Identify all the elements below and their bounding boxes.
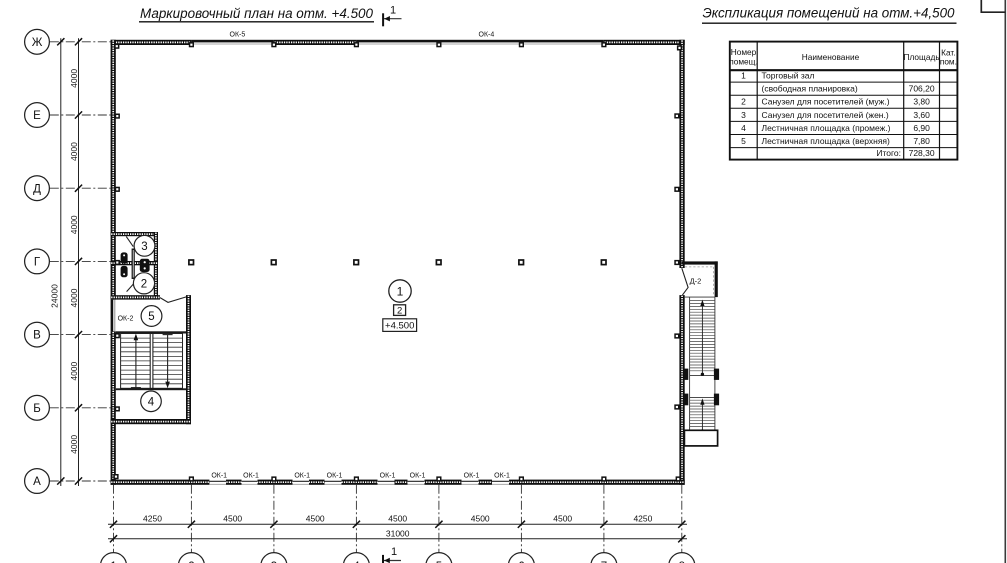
svg-text:Экспликация помещений на отм.+: Экспликация помещений на отм.+4,500 <box>703 6 955 22</box>
svg-text:ОК-1: ОК-1 <box>294 472 310 479</box>
svg-text:706,20: 706,20 <box>909 84 935 94</box>
svg-text:ОК-1: ОК-1 <box>410 472 426 479</box>
svg-text:Маркировочный план на отм. +4.: Маркировочный план на отм. +4.500 <box>140 6 373 22</box>
svg-text:Ж: Ж <box>32 37 43 49</box>
svg-text:2: 2 <box>141 278 147 290</box>
svg-text:пом.: пом. <box>940 57 957 67</box>
svg-text:4: 4 <box>741 123 746 133</box>
svg-text:Д-2: Д-2 <box>690 276 702 285</box>
svg-text:4500: 4500 <box>388 514 407 524</box>
svg-text:4000: 4000 <box>69 288 79 307</box>
svg-text:4000: 4000 <box>69 361 79 380</box>
svg-text:4250: 4250 <box>143 514 162 524</box>
svg-text:728,30: 728,30 <box>909 148 935 158</box>
svg-text:ОК-1: ОК-1 <box>380 472 396 479</box>
svg-text:ОК-1: ОК-1 <box>327 472 343 479</box>
svg-text:ОК-1: ОК-1 <box>243 472 259 479</box>
svg-text:7,80: 7,80 <box>913 136 930 146</box>
svg-text:3: 3 <box>741 110 746 120</box>
svg-text:В: В <box>33 330 41 342</box>
svg-text:ОК-1: ОК-1 <box>494 472 510 479</box>
svg-text:6,90: 6,90 <box>913 123 930 133</box>
svg-text:4500: 4500 <box>471 514 490 524</box>
svg-text:Итого:: Итого: <box>876 148 901 158</box>
svg-text:4000: 4000 <box>69 435 79 454</box>
svg-text:(свободная планировка): (свободная планировка) <box>762 84 858 94</box>
svg-text:Площадь: Площадь <box>904 52 940 62</box>
svg-text:3,60: 3,60 <box>913 110 930 120</box>
svg-text:1: 1 <box>390 4 396 16</box>
svg-text:Санузел для посетителей (муж.): Санузел для посетителей (муж.) <box>762 97 890 107</box>
svg-text:Лестничная площадка (верхняя): Лестничная площадка (верхняя) <box>762 136 891 146</box>
svg-text:1: 1 <box>741 71 746 81</box>
svg-text:4500: 4500 <box>553 514 572 524</box>
svg-text:31000: 31000 <box>386 529 410 539</box>
svg-text:4000: 4000 <box>69 69 79 88</box>
svg-text:4000: 4000 <box>69 142 79 161</box>
svg-text:Торговый зал: Торговый зал <box>762 71 815 81</box>
svg-text:А: А <box>33 476 41 488</box>
svg-text:Наименование: Наименование <box>802 52 860 62</box>
svg-text:помещ.: помещ. <box>729 56 758 66</box>
svg-text:Лестничная площадка (промеж.): Лестничная площадка (промеж.) <box>762 123 891 133</box>
svg-text:1: 1 <box>391 546 397 558</box>
svg-text:5: 5 <box>741 136 746 146</box>
svg-text:+4.500: +4.500 <box>385 321 414 332</box>
svg-text:ОК-5: ОК-5 <box>230 32 246 39</box>
svg-text:2: 2 <box>741 97 746 107</box>
svg-text:2: 2 <box>397 306 402 317</box>
svg-text:ОК-2: ОК-2 <box>118 316 134 323</box>
svg-text:4250: 4250 <box>633 514 652 524</box>
svg-text:ОК-4: ОК-4 <box>479 32 495 39</box>
svg-text:3,80: 3,80 <box>913 97 930 107</box>
svg-text:Е: Е <box>33 110 41 122</box>
svg-text:Г: Г <box>34 257 41 269</box>
svg-text:4500: 4500 <box>223 514 242 524</box>
svg-text:24000: 24000 <box>50 284 60 308</box>
svg-text:Д: Д <box>33 183 41 195</box>
svg-text:Б: Б <box>33 403 41 415</box>
svg-text:Санузел для посетителей (жен.): Санузел для посетителей (жен.) <box>762 110 889 120</box>
svg-text:1: 1 <box>397 284 404 298</box>
svg-text:4: 4 <box>148 396 155 408</box>
svg-text:3: 3 <box>141 241 147 253</box>
svg-text:ОК-1: ОК-1 <box>211 472 227 479</box>
svg-text:4500: 4500 <box>306 514 325 524</box>
svg-text:4000: 4000 <box>69 215 79 234</box>
svg-text:ОК-1: ОК-1 <box>464 472 480 479</box>
svg-text:5: 5 <box>148 311 154 323</box>
